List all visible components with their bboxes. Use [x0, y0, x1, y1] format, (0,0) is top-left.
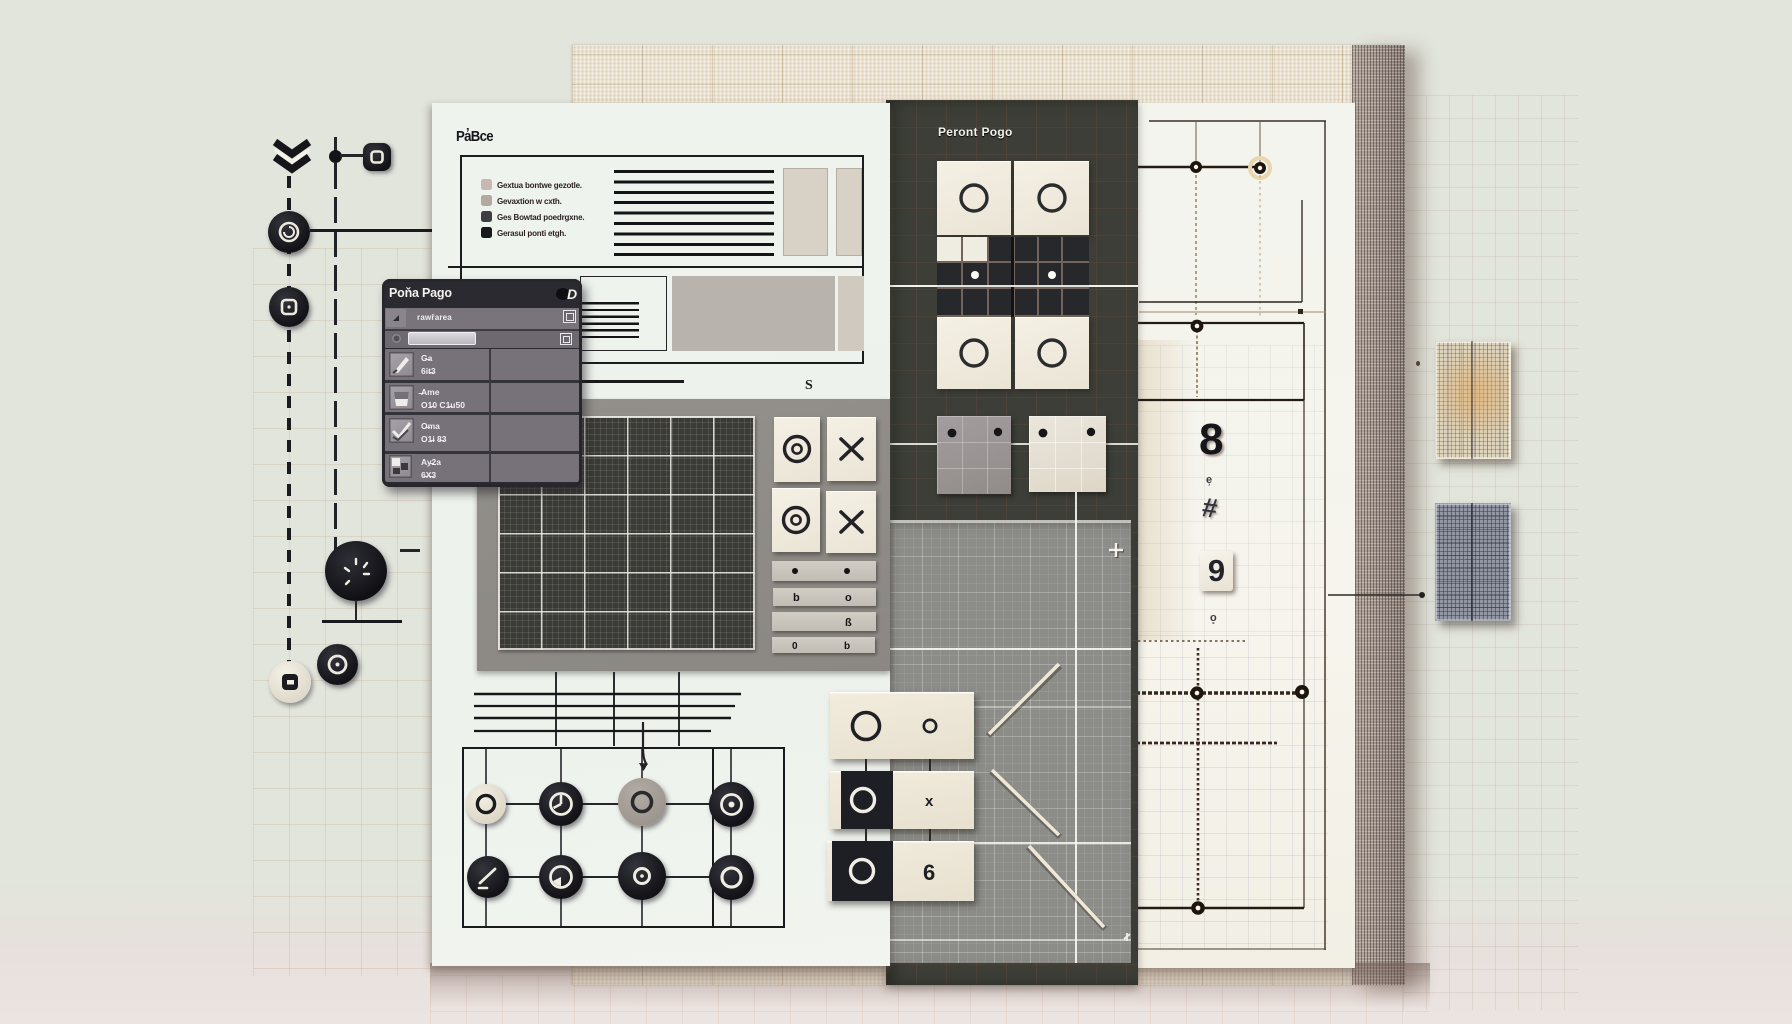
svg-text:ß: ß [845, 617, 852, 629]
svg-text:o: o [845, 592, 852, 604]
svg-text:x: x [925, 793, 934, 810]
svg-text:0: 0 [792, 641, 798, 652]
svg-text:b: b [844, 641, 850, 652]
svg-text:b: b [793, 592, 800, 604]
svg-text:D: D [567, 287, 577, 301]
svg-text:6: 6 [923, 860, 935, 885]
